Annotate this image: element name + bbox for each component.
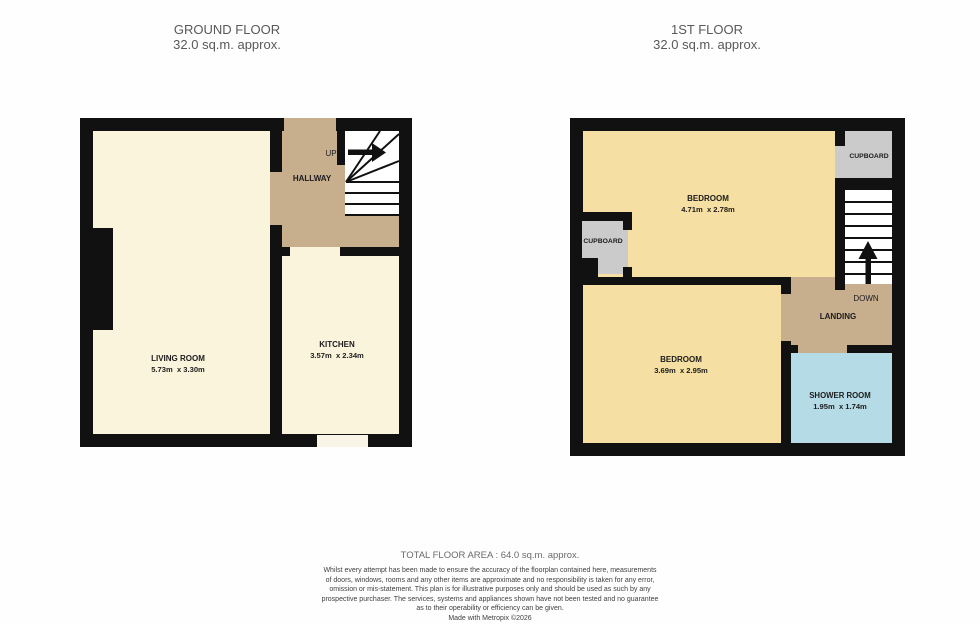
down-label: DOWN [853, 294, 879, 303]
floorplan-canvas: UP HALLWAY LIVING ROOM 5.73m x 3.30m KIT… [0, 0, 980, 612]
gf-divider-wall-top [270, 131, 282, 172]
bedroom1-dims: 4.71m x 2.78m [681, 205, 735, 214]
gf-divider-wall-bottom [270, 225, 282, 435]
hallway-kitchen-wall-right [340, 247, 412, 256]
shower-room-label: SHOWER ROOM [809, 391, 871, 400]
disclaimer-line: of doors, windows, rooms and any other i… [0, 576, 980, 586]
living-room-dims: 5.73m x 3.30m [151, 365, 205, 374]
ground-floor-plan: UP HALLWAY LIVING ROOM 5.73m x 3.30m KIT… [80, 118, 412, 447]
shower-room-dims: 1.95m x 1.74m [813, 402, 867, 411]
disclaimer-line: omission or mis-statement. This plan is … [0, 585, 980, 595]
total-floor-area: TOTAL FLOOR AREA : 64.0 sq.m. approx. [0, 550, 980, 561]
cupboard-top-door-opening [835, 146, 845, 178]
landing-shower-wall-right [847, 345, 892, 353]
bedroom1-label: BEDROOM [687, 194, 729, 203]
bedrooms-divider-wall [570, 277, 791, 285]
up-label: UP [325, 149, 336, 158]
cupboard-left-step-wall [582, 258, 598, 285]
bedroom2-label: BEDROOM [660, 355, 702, 364]
front-door-opening [284, 118, 336, 131]
chimney-breast [92, 228, 113, 330]
cupboard-top-label: CUPBOARD [849, 153, 888, 160]
metropix-credit: Made with Metropix ©2026 [0, 614, 980, 624]
cupboard-left-lower-stub [623, 267, 632, 277]
disclaimer-line: Whilst every attempt has been made to en… [0, 566, 980, 576]
bedroom2-dims: 3.69m x 2.95m [654, 366, 708, 375]
kitchen-label: KITCHEN [319, 340, 355, 349]
gf-stairs-side-wall [337, 131, 345, 165]
bedroom2-landing-wall-top [781, 277, 791, 294]
disclaimer-line: prospective purchaser. The services, sys… [0, 595, 980, 605]
hallway-label: HALLWAY [293, 174, 332, 183]
cupboard-left-right-stub [623, 212, 632, 230]
shower-door-opening [798, 345, 847, 353]
bedroom2-door-opening [781, 294, 791, 341]
shower-left-wall [781, 341, 791, 443]
kitchen-dims: 3.57m x 2.34m [310, 351, 364, 360]
landing-label: LANDING [820, 312, 856, 321]
cupboard-top-bottom-wall [845, 178, 892, 190]
disclaimer-line: as to their operability or efficiency ca… [0, 604, 980, 614]
living-room-door-opening [270, 172, 282, 225]
hallway-kitchen-wall-left [270, 247, 290, 256]
landing-shower-wall-left [781, 345, 798, 353]
back-door-opening [317, 435, 368, 447]
first-floor-plan: BEDROOM 4.71m x 2.78m CUPBOARD CUPBOARD … [570, 118, 905, 456]
disclaimer: Whilst every attempt has been made to en… [0, 566, 980, 624]
cupboard-left-label: CUPBOARD [583, 238, 622, 245]
kitchen-door-opening [290, 247, 340, 256]
living-room-label: LIVING ROOM [151, 354, 205, 363]
